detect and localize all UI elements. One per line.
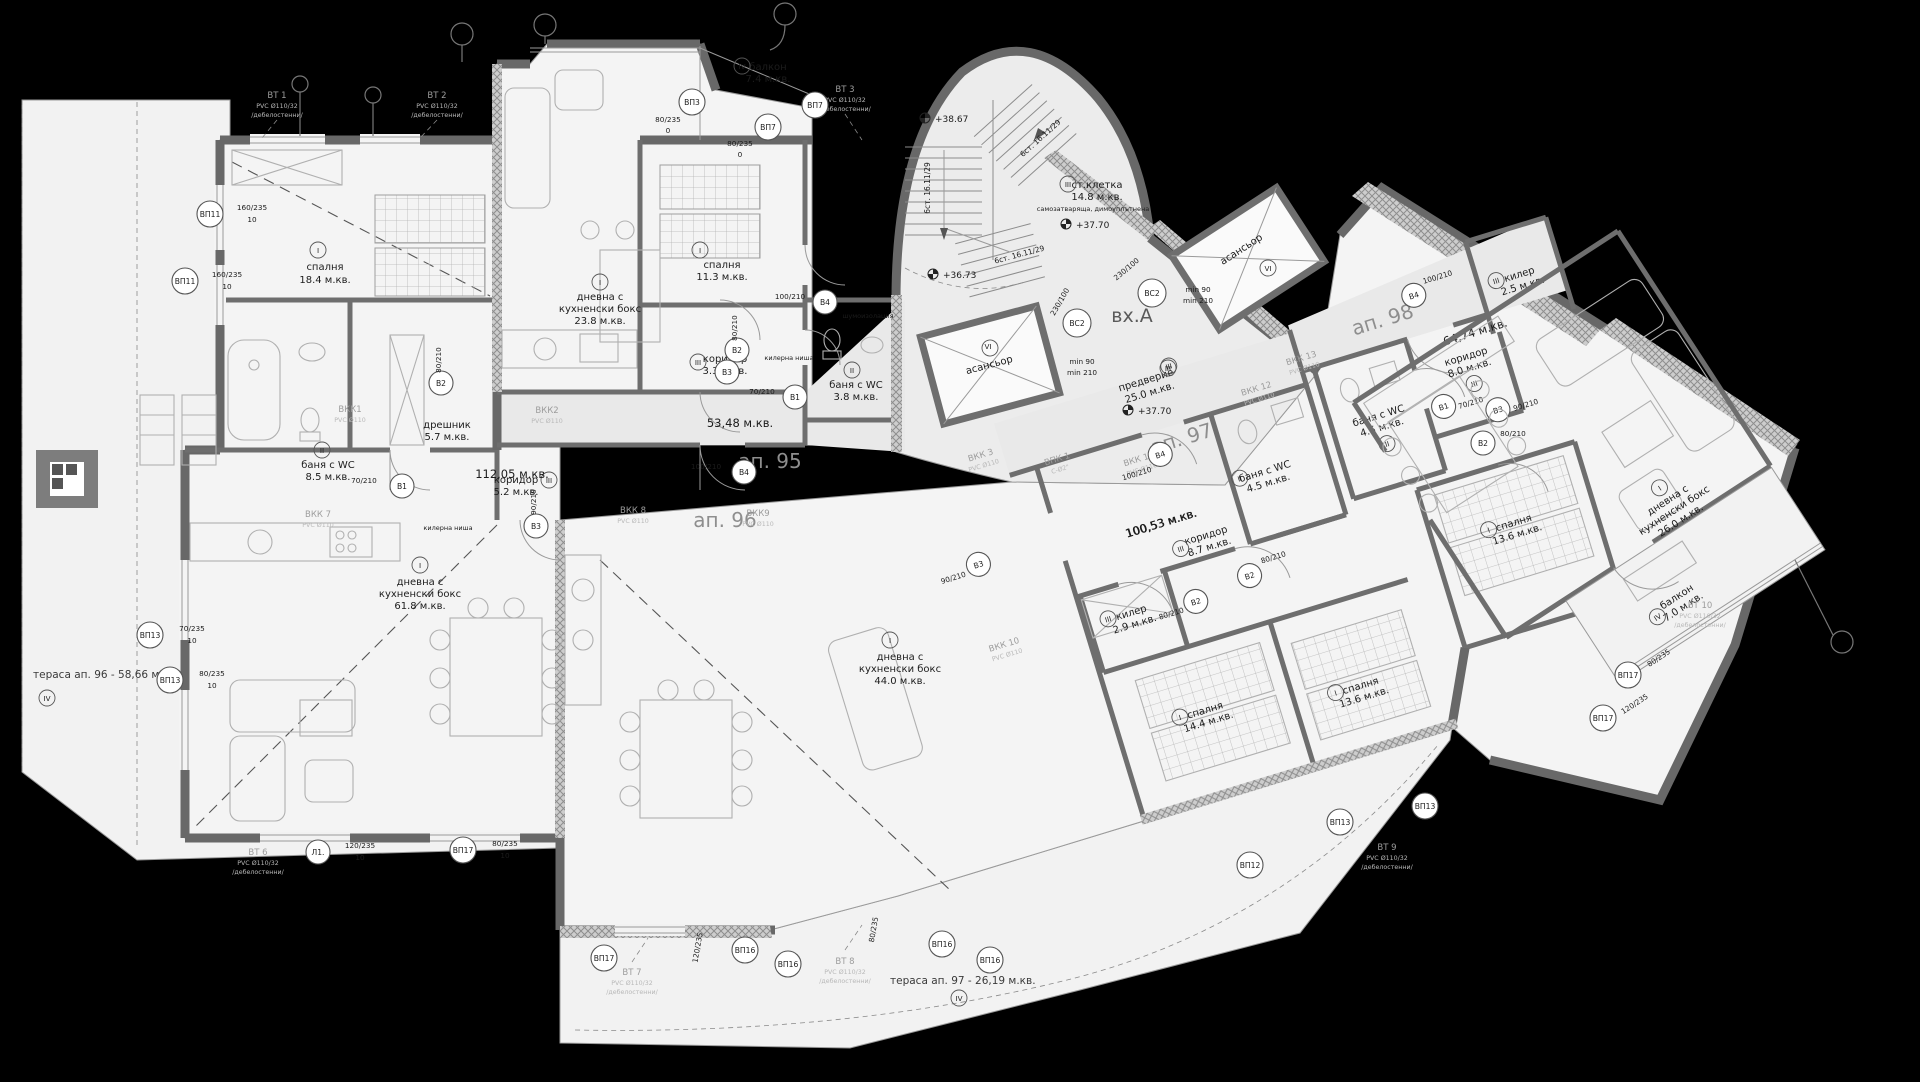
stair-steps: 6ст. 16.11/29 [923, 162, 932, 214]
liv95-label1: дневна с [577, 292, 624, 303]
vs2-mark: ВС2 [1069, 319, 1085, 328]
window-mark-vp13: ВП13 [1330, 818, 1351, 827]
zone-mark: I [317, 246, 319, 255]
bed [375, 248, 485, 296]
vt6-spec: PVC Ø110/32 [237, 859, 279, 867]
level-value: +37.70 [1138, 407, 1172, 417]
vt3-label: ВТ 3 [835, 85, 854, 95]
dim: 80/235 [655, 115, 681, 124]
dim: 10 [222, 282, 232, 291]
vkk7-label: ВКК 7 [305, 510, 331, 520]
niche95-label: килерна ниша [764, 354, 813, 362]
dim: 100/210 [775, 292, 806, 301]
window-mark-vp16: ВП16 [778, 960, 799, 969]
dim: 0 [738, 150, 743, 159]
zone-mark: IV [955, 994, 962, 1003]
dim: 90/210 [529, 489, 538, 515]
vt3-spec: PVC Ø110/32 [824, 96, 866, 104]
zone-mark: I [419, 561, 421, 570]
door-mark-b4: В4 [739, 468, 749, 477]
liv95-label2: кухненски бокс [559, 304, 641, 315]
door-mark-b3: В3 [722, 368, 732, 377]
zone-mark: III [1065, 180, 1071, 189]
stairwell-area: 14.8 м.кв. [1071, 192, 1122, 203]
window-mark-vp17: ВП17 [453, 846, 474, 855]
vkk8-label: ВКК 8 [620, 506, 646, 516]
door-mark-b1: В1 [790, 393, 800, 402]
liv95-area: 23.8 м.кв. [574, 316, 625, 327]
min-clearance: min 90 [1069, 357, 1095, 366]
vkk7-spec: PVC Ø110 [302, 521, 333, 529]
level-marker [920, 113, 930, 123]
window-mark-vp16: ВП16 [932, 940, 953, 949]
door-mark-b2: В2 [1478, 439, 1488, 448]
liv96-label2: кухненски бокс [379, 589, 461, 600]
dim: 10 [500, 851, 510, 860]
window-mark-vp13: ВП13 [1415, 802, 1436, 811]
door-mark-b1: В1 [397, 482, 407, 491]
min-clearance: min 90 [1185, 285, 1211, 294]
dim: 10 [247, 215, 257, 224]
dress96-area: 5.7 м.кв. [425, 432, 470, 443]
window-mark-vp16: ВП16 [980, 956, 1001, 965]
window-mark-vp12: ВП12 [1240, 861, 1261, 870]
ap96-area: 112,05 м.кв. [475, 467, 549, 481]
dim: 80/210 [434, 347, 443, 373]
window [260, 832, 350, 844]
mark-l1: Л1. [312, 848, 325, 857]
dim: 100/210 [691, 462, 722, 471]
floor-plan-drawing: предверие 25.0 м.кв. III ап. 97 100,53 м… [0, 0, 1920, 1082]
vt10-note: /дебелостенни/ [1674, 621, 1726, 629]
vkk2-label: ВКК2 [535, 406, 558, 416]
dim: 10 [355, 853, 365, 862]
bed95-label: спалня [703, 260, 740, 271]
window-mark-vp7: ВП7 [760, 123, 776, 132]
door-mark-b4: В4 [820, 298, 830, 307]
dim: 80/210 [730, 315, 739, 341]
bath95-area: 3.8 м.кв. [834, 392, 879, 403]
window-mark-vp17: ВП17 [594, 954, 615, 963]
window-mark-vp7: ВП7 [807, 101, 823, 110]
window [615, 924, 685, 936]
dim: 70/210 [351, 476, 377, 485]
vt9-label: ВТ 9 [1377, 843, 1396, 853]
vkk1-spec: PVC Ø110 [334, 416, 365, 424]
min-clearance: min 210 [1067, 368, 1097, 377]
vkk2-spec: PVC Ø110 [531, 417, 562, 425]
level-value: +38.67 [935, 115, 968, 125]
level-marker [1061, 219, 1071, 229]
balc95-label: балкон [749, 62, 786, 73]
window-mark-vp17: ВП17 [1593, 714, 1614, 723]
vt2-spec: PVC Ø110/32 [416, 102, 458, 110]
zone-mark: II [320, 446, 324, 455]
vkk9-spec: PVC Ø110 [742, 520, 773, 528]
window-mark-vp16: ВП16 [735, 946, 756, 955]
door-mark-b3: В3 [531, 522, 541, 531]
bed [375, 195, 485, 243]
bed95-area: 11.3 м.кв. [696, 272, 747, 283]
vt6-note: /дебелостенни/ [232, 868, 284, 876]
dim: 80/210 [1500, 429, 1526, 438]
zone-mark: I [889, 636, 891, 645]
bed96-area: 18.4 м.кв. [299, 275, 350, 286]
vkk8-spec: PVC Ø110 [617, 517, 648, 525]
dim: 160/235 [237, 203, 267, 212]
vt10-label: ВТ 10 [1688, 601, 1713, 611]
vt2-note: /дебелостенни/ [411, 111, 463, 119]
vt1-spec: PVC Ø110/32 [256, 102, 298, 110]
vt10-spec: PVC Ø110/32 [1679, 612, 1721, 620]
vt1-label: ВТ 1 [267, 91, 286, 101]
dim: 80/235 [727, 139, 753, 148]
balc95-area: 7.4 м.кв. [746, 74, 791, 85]
window-mark-vp3: ВП3 [684, 98, 700, 107]
liv97-label2: кухненски бокс [859, 664, 941, 675]
bath95-label: баня с WC [829, 380, 883, 391]
terrace-97-label: тераса ап. 97 - 26,19 м.кв. [890, 975, 1036, 987]
min-clearance: min 210 [1183, 296, 1213, 305]
level-marker [1123, 405, 1133, 415]
zone-mark: IV [43, 694, 50, 703]
vt9-note: /дебелостенни/ [1361, 863, 1413, 871]
vt2-label: ВТ 2 [427, 91, 446, 101]
dim: 80/235 [199, 669, 225, 678]
window [250, 134, 325, 146]
door-mark-b2: В2 [436, 379, 446, 388]
window-mark-vp13: ВП13 [160, 676, 181, 685]
zone-mark: VI [984, 342, 991, 351]
zone-mark: I [699, 246, 701, 255]
dim: 70/235 [179, 624, 205, 633]
bed [660, 165, 760, 209]
window [360, 134, 420, 146]
vt1-note: /дебелостенни/ [251, 111, 303, 119]
niche96-label: килерна ниша [423, 524, 472, 532]
vt8-label: ВТ 8 [835, 957, 854, 967]
door-mark-b2: В2 [732, 346, 742, 355]
stairwell-note: самозатваряща, димоуплътнена [1037, 205, 1149, 213]
liv97-area: 44.0 м.кв. [874, 676, 925, 687]
stairwell-label: ст.клетка [1071, 180, 1122, 191]
liv97-label1: дневна с [877, 652, 924, 663]
vt9-spec: PVC Ø110/32 [1366, 854, 1408, 862]
vt7-label: ВТ 7 [622, 968, 641, 978]
dim: 160/235 [212, 270, 242, 279]
vt8-spec: PVC Ø110/32 [824, 968, 866, 976]
vt7-note: /дебелостенни/ [606, 988, 658, 996]
bed [660, 214, 760, 258]
level-value: +36.73 [943, 271, 976, 281]
window-mark-vp11: ВП11 [200, 210, 221, 219]
floor-plan-canvas: предверие 25.0 м.кв. III ап. 97 100,53 м… [0, 0, 1920, 1082]
level-marker [928, 269, 938, 279]
dim: 10 [207, 681, 217, 690]
vt7-spec: PVC Ø110/32 [611, 979, 653, 987]
level-value: +37.70 [1076, 221, 1110, 231]
zone-mark: I [599, 278, 601, 287]
vkk9-label: ВКК9 [746, 509, 769, 519]
dim: 120/235 [345, 841, 375, 850]
window-mark-vp13: ВП13 [140, 631, 161, 640]
zone-mark: III [1165, 364, 1171, 373]
zone-mark: IV [738, 62, 745, 71]
window [179, 690, 191, 770]
liv96-area: 61.8 м.кв. [394, 601, 445, 612]
zone-mark: II [850, 366, 854, 375]
planter-box [36, 450, 98, 508]
bed96-label: спалня [306, 262, 343, 273]
sound-insulation-note: шумоизолация [842, 312, 893, 320]
bath96-label: баня с WC [301, 460, 355, 471]
vt8-note: /дебелостенни/ [819, 977, 871, 985]
dim: 80/235 [492, 839, 518, 848]
dim: 10 [187, 636, 197, 645]
zone-mark: VI [1264, 264, 1271, 273]
window-mark-vp11: ВП11 [175, 277, 196, 286]
entrance-label: вх.А [1111, 305, 1152, 327]
bath96-area: 8.5 м.кв. [306, 472, 351, 483]
window-mark-vp17: ВП17 [1618, 671, 1639, 680]
vkk1-label: ВКК1 [338, 405, 361, 415]
dim: 0 [666, 126, 671, 135]
liv96-label1: дневна с [397, 577, 444, 588]
zone-mark: III [695, 358, 701, 367]
vs2-mark: ВС2 [1144, 289, 1160, 298]
ap95-area: 53,48 м.кв. [707, 416, 773, 430]
vt6-label: ВТ 6 [248, 848, 267, 858]
dress96-label: дрешник [423, 420, 471, 431]
dim: 70/210 [749, 387, 775, 396]
